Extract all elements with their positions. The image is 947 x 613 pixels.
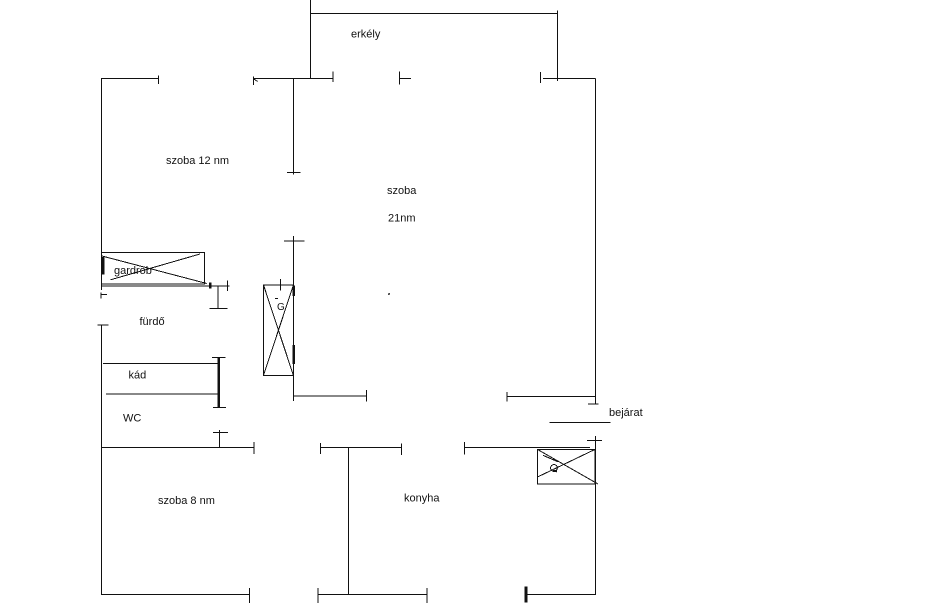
svg-text:bejárat: bejárat	[609, 407, 643, 419]
svg-text:WC: WC	[123, 413, 141, 425]
svg-text:gardrob: gardrob	[114, 265, 152, 277]
svg-text:konyha: konyha	[404, 493, 440, 505]
svg-text:szoba: szoba	[387, 185, 417, 197]
svg-text:erkély: erkély	[351, 29, 381, 41]
svg-text:kád: kád	[129, 370, 147, 382]
svg-text:szoba 12 nm: szoba 12 nm	[166, 155, 229, 167]
svg-text:szoba 8 nm: szoba 8 nm	[158, 495, 215, 507]
svg-text:21nm: 21nm	[388, 212, 416, 224]
svg-text:fürdő: fürdő	[140, 316, 165, 328]
svg-text:G: G	[277, 302, 285, 313]
